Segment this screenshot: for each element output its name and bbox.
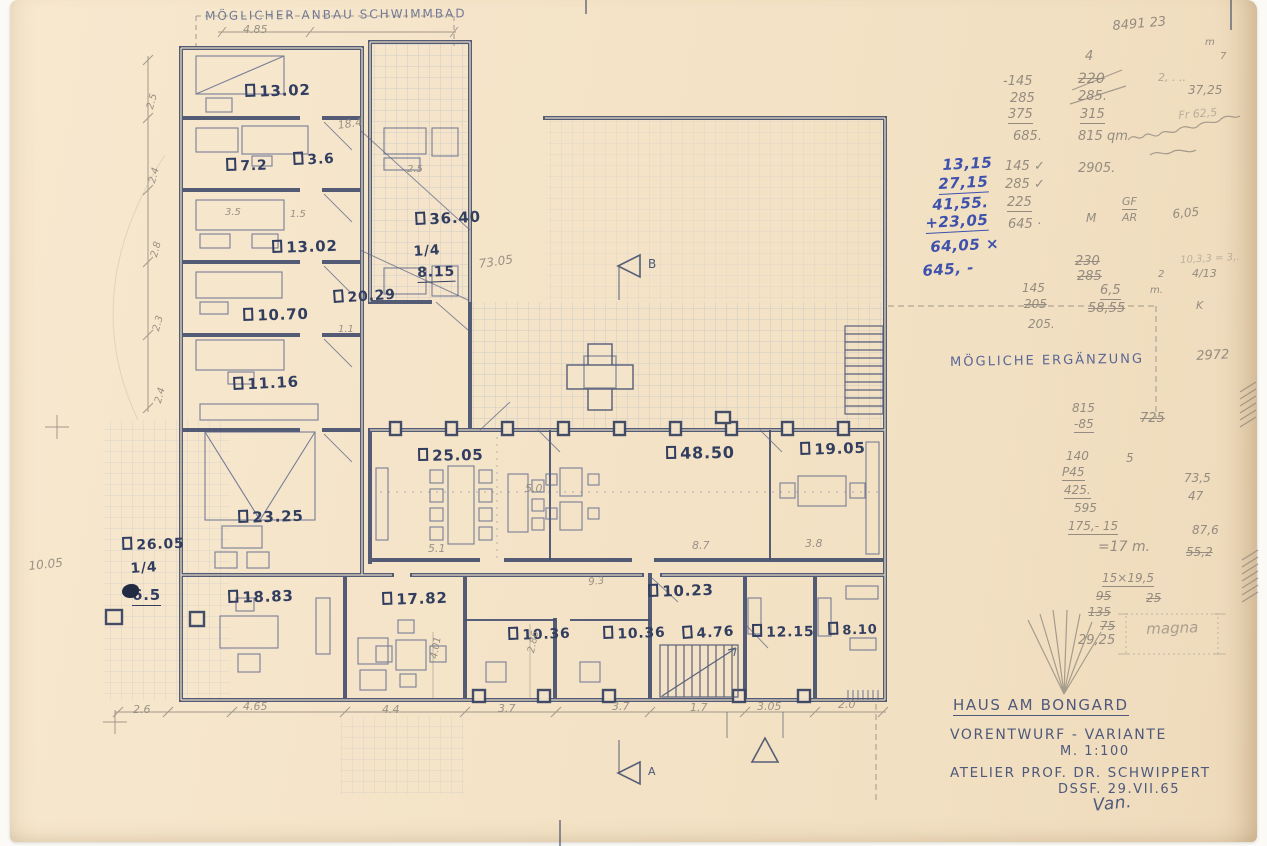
- room-area-label: 26.05: [122, 535, 185, 554]
- pencil-note: -145: [1003, 75, 1033, 89]
- pencil-note: 645 ·: [1008, 218, 1041, 232]
- title-atelier: ATELIER PROF. DR. SCHWIPPERT: [950, 766, 1211, 780]
- pencil-note: 815 qm: [1078, 130, 1128, 144]
- room-area-label: 3.6: [293, 150, 335, 169]
- title-scale: M. 1:100: [1060, 745, 1130, 759]
- pencil-note: m.: [1150, 286, 1163, 297]
- room-square-icon: [752, 624, 762, 637]
- room-area-label: 19.05: [800, 440, 866, 459]
- dimension-label: 4.85: [243, 24, 268, 36]
- room-square-icon: [233, 376, 244, 390]
- pencil-note: 47: [1188, 490, 1203, 503]
- pencil-note: 685.: [1013, 130, 1042, 144]
- pencil-note: 2972: [1196, 348, 1230, 363]
- pencil-note: 140: [1066, 450, 1089, 463]
- room-area-label: 12.15: [752, 623, 815, 641]
- pencil-note: 95: [1096, 590, 1111, 603]
- pencil-note: 225: [1007, 196, 1032, 212]
- pencil-note: 2, . ..: [1158, 72, 1186, 84]
- pencil-note: 815: [1072, 402, 1095, 415]
- room-square-icon: [245, 84, 255, 97]
- dimension-label: 1.7: [690, 702, 708, 714]
- pencil-note: 145: [1022, 282, 1045, 295]
- room-area-label: 8.10: [828, 620, 878, 638]
- room-fraction-label: 1/4: [413, 243, 441, 260]
- scanned-floor-plan-sheet: { "drawing": { "extension_note": "MÖGLIC…: [0, 0, 1267, 846]
- room-area-label: 48.50: [666, 445, 735, 463]
- pencil-note: 205.: [1028, 318, 1055, 331]
- room-square-icon: [382, 592, 392, 605]
- pencil-note: K: [1196, 300, 1203, 312]
- pencil-note: 73,5: [1184, 472, 1211, 485]
- pencil-note-box-word: magna: [1146, 620, 1199, 638]
- dimension-label: 1.5: [290, 210, 306, 221]
- pencil-note: 2905.: [1078, 162, 1115, 176]
- pencil-note: 285 ✓: [1005, 178, 1045, 192]
- ink-sum: 27,15: [938, 174, 989, 194]
- pencil-note: 4: [1085, 50, 1093, 64]
- room-square-icon: [122, 537, 132, 550]
- pencil-note: 37,25: [1188, 84, 1222, 97]
- room-square-icon: [682, 625, 693, 639]
- pencil-note: 285: [1077, 270, 1102, 284]
- dimension-label: 3.8: [805, 538, 823, 550]
- room-square-icon: [508, 627, 518, 640]
- dimension-label: 3.7: [498, 703, 516, 715]
- room-area-label: 10.36: [603, 624, 666, 643]
- dimension-label: 5.1: [428, 543, 446, 555]
- pencil-note: =17 m.: [1098, 540, 1150, 555]
- pencil-note: 55,2: [1186, 546, 1213, 559]
- extension-note: MÖGLICHER ANBAU SCHWIMMBAD: [205, 7, 467, 22]
- room-area-label: 10.70: [243, 306, 309, 325]
- room-square-icon: [293, 151, 304, 165]
- ink-sum: +23,05: [925, 213, 989, 234]
- pencil-note: 25: [1146, 592, 1161, 605]
- room-fraction-label: 8.15: [417, 265, 455, 283]
- room-square-icon: [226, 158, 236, 171]
- room-area-label: 4.76: [682, 622, 735, 642]
- pencil-note: 285: [1010, 92, 1035, 106]
- pencil-note: M: [1086, 212, 1096, 225]
- pencil-note: 230: [1075, 255, 1100, 269]
- room-square-icon: [648, 584, 658, 597]
- dimension-label: 1.1: [338, 325, 354, 336]
- pencil-note: 2: [1158, 270, 1164, 281]
- pencil-note: 15×19,5: [1102, 572, 1154, 587]
- section-marker-label: A: [648, 766, 656, 778]
- pencil-note: 285.: [1078, 90, 1107, 104]
- pencil-note: P45: [1062, 466, 1085, 481]
- room-area-label: 36.40: [415, 209, 481, 229]
- room-fraction-label: 1/4: [130, 560, 158, 577]
- dimension-label: 2.5: [407, 165, 423, 176]
- ink-blot: [122, 584, 139, 598]
- dimension-label: 3.7: [612, 701, 630, 713]
- room-square-icon: [228, 590, 238, 603]
- room-square-icon: [603, 626, 613, 639]
- room-square-icon: [415, 211, 426, 225]
- dimension-label: 8.7: [692, 540, 710, 552]
- pencil-note: 7: [1220, 52, 1226, 63]
- pencil-note: 6,05: [1172, 206, 1200, 221]
- ergaenzung-note: MÖGLICHE ERGÄNZUNG: [950, 353, 1144, 370]
- pencil-note: 220: [1078, 72, 1105, 87]
- pencil-note: 29,25: [1078, 634, 1115, 648]
- room-area-label: 10.23: [648, 582, 714, 601]
- pencil-note: m: [1205, 38, 1215, 49]
- pencil-note: 425.: [1064, 484, 1091, 499]
- pencil-note: 315: [1080, 108, 1105, 124]
- room-square-icon: [418, 448, 428, 461]
- pencil-note: 145 ✓: [1005, 160, 1045, 174]
- room-square-icon: [238, 510, 248, 523]
- room-area-label: 23.25: [238, 508, 304, 527]
- pencil-note: 595: [1074, 502, 1097, 515]
- dimension-label: 5.0: [525, 483, 543, 495]
- pencil-note: 5: [1126, 452, 1134, 465]
- ink-sum: 13,15: [942, 155, 993, 173]
- title-phase: VORENTWURF - VARIANTE: [950, 728, 1167, 743]
- pencil-note: 205: [1024, 298, 1047, 311]
- room-area-label: 7.2: [226, 157, 268, 175]
- dimension-label: 4.65: [243, 701, 268, 713]
- room-area-label: 13.02: [272, 238, 338, 257]
- dimension-label: 2.0: [838, 699, 856, 711]
- room-square-icon: [272, 240, 282, 253]
- dimension-label: 9.3: [588, 577, 605, 589]
- dimension-label: 3.05: [757, 701, 782, 713]
- room-area-label: 18.83: [228, 588, 294, 607]
- pencil-note: 375: [1008, 108, 1033, 124]
- pencil-note: 4/13: [1192, 268, 1217, 280]
- pencil-note: 75: [1100, 620, 1115, 633]
- pencil-note: -85: [1074, 418, 1094, 433]
- pencil-note: 725: [1140, 412, 1165, 426]
- room-square-icon: [243, 308, 253, 321]
- room-area-label: 25.05: [418, 447, 484, 465]
- pencil-note: 175,- 15: [1068, 520, 1118, 535]
- pencil-note: 87,6: [1192, 524, 1219, 537]
- dimension-label: 4.4: [382, 704, 400, 716]
- pencil-note: AR: [1122, 212, 1137, 224]
- room-square-icon: [828, 622, 838, 635]
- room-area-label: 13.02: [245, 82, 311, 101]
- room-area-label: 17.82: [382, 590, 448, 609]
- dimension-label: 3.5: [225, 208, 241, 219]
- ink-sum: 64,05 ×: [930, 236, 999, 255]
- pencil-note: 58,55: [1088, 302, 1125, 316]
- room-square-icon: [800, 442, 810, 455]
- title-project: HAUS AM BONGARD: [953, 698, 1129, 716]
- room-square-icon: [666, 446, 676, 459]
- room-area-label: 11.16: [233, 374, 299, 394]
- section-marker-label: B: [648, 258, 656, 271]
- pencil-note: 6,5: [1100, 284, 1121, 300]
- dimension-label: 2.6: [133, 704, 151, 716]
- pencil-note: GF: [1122, 196, 1137, 210]
- pencil-note: 135: [1088, 606, 1111, 619]
- room-square-icon: [333, 289, 344, 303]
- ink-sum: 645, -: [922, 260, 974, 279]
